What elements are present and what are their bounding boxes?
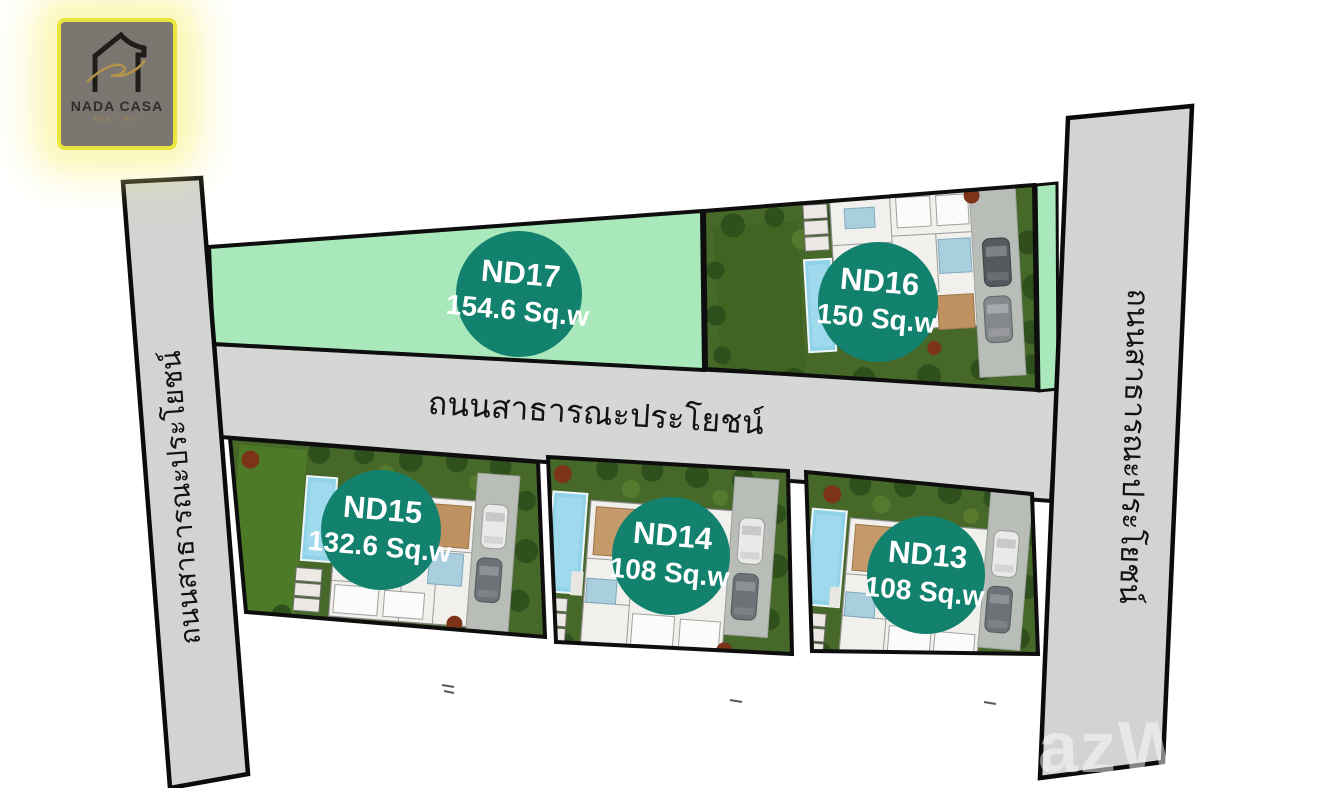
car [737, 517, 765, 565]
plot-id-label: ND16 [839, 261, 921, 303]
car [982, 237, 1012, 286]
house-logo-icon [81, 30, 153, 96]
plot-id-label: ND17 [480, 253, 562, 295]
bed [383, 590, 425, 619]
car [480, 504, 508, 550]
bed [933, 631, 975, 662]
bed [936, 194, 970, 226]
logo-subtitle: Hua - Hin [94, 116, 139, 123]
watermark-text: FazW [992, 708, 1188, 788]
plot-id-label: ND13 [887, 534, 969, 576]
bed [630, 614, 674, 649]
bathroom [938, 238, 972, 274]
wood-floor-room [937, 294, 975, 330]
bathroom [844, 207, 875, 229]
car [474, 557, 502, 603]
right-road: ถนนสาธารณะประโยชน์ [1040, 106, 1192, 778]
red-shrub [968, 654, 985, 671]
car [983, 296, 1013, 343]
nada-casa-logo: NADA CASA Hua - Hin [57, 18, 177, 150]
plot-sliver [1036, 183, 1058, 391]
site-plan-svg: ถนนสาธารณะประโยชน์ [0, 0, 1318, 788]
car [991, 530, 1020, 578]
survey-marks [442, 685, 996, 704]
car [984, 586, 1013, 634]
utility-rooms [803, 204, 830, 251]
utility-rooms [293, 567, 322, 612]
bed [896, 196, 932, 228]
site-plan-page: ถนนสาธารณะประโยชน์ [0, 0, 1318, 788]
plot-id-label: ND15 [342, 489, 424, 531]
car [731, 573, 759, 621]
plot-id-label: ND14 [632, 515, 715, 557]
logo-title: NADA CASA [71, 98, 163, 114]
